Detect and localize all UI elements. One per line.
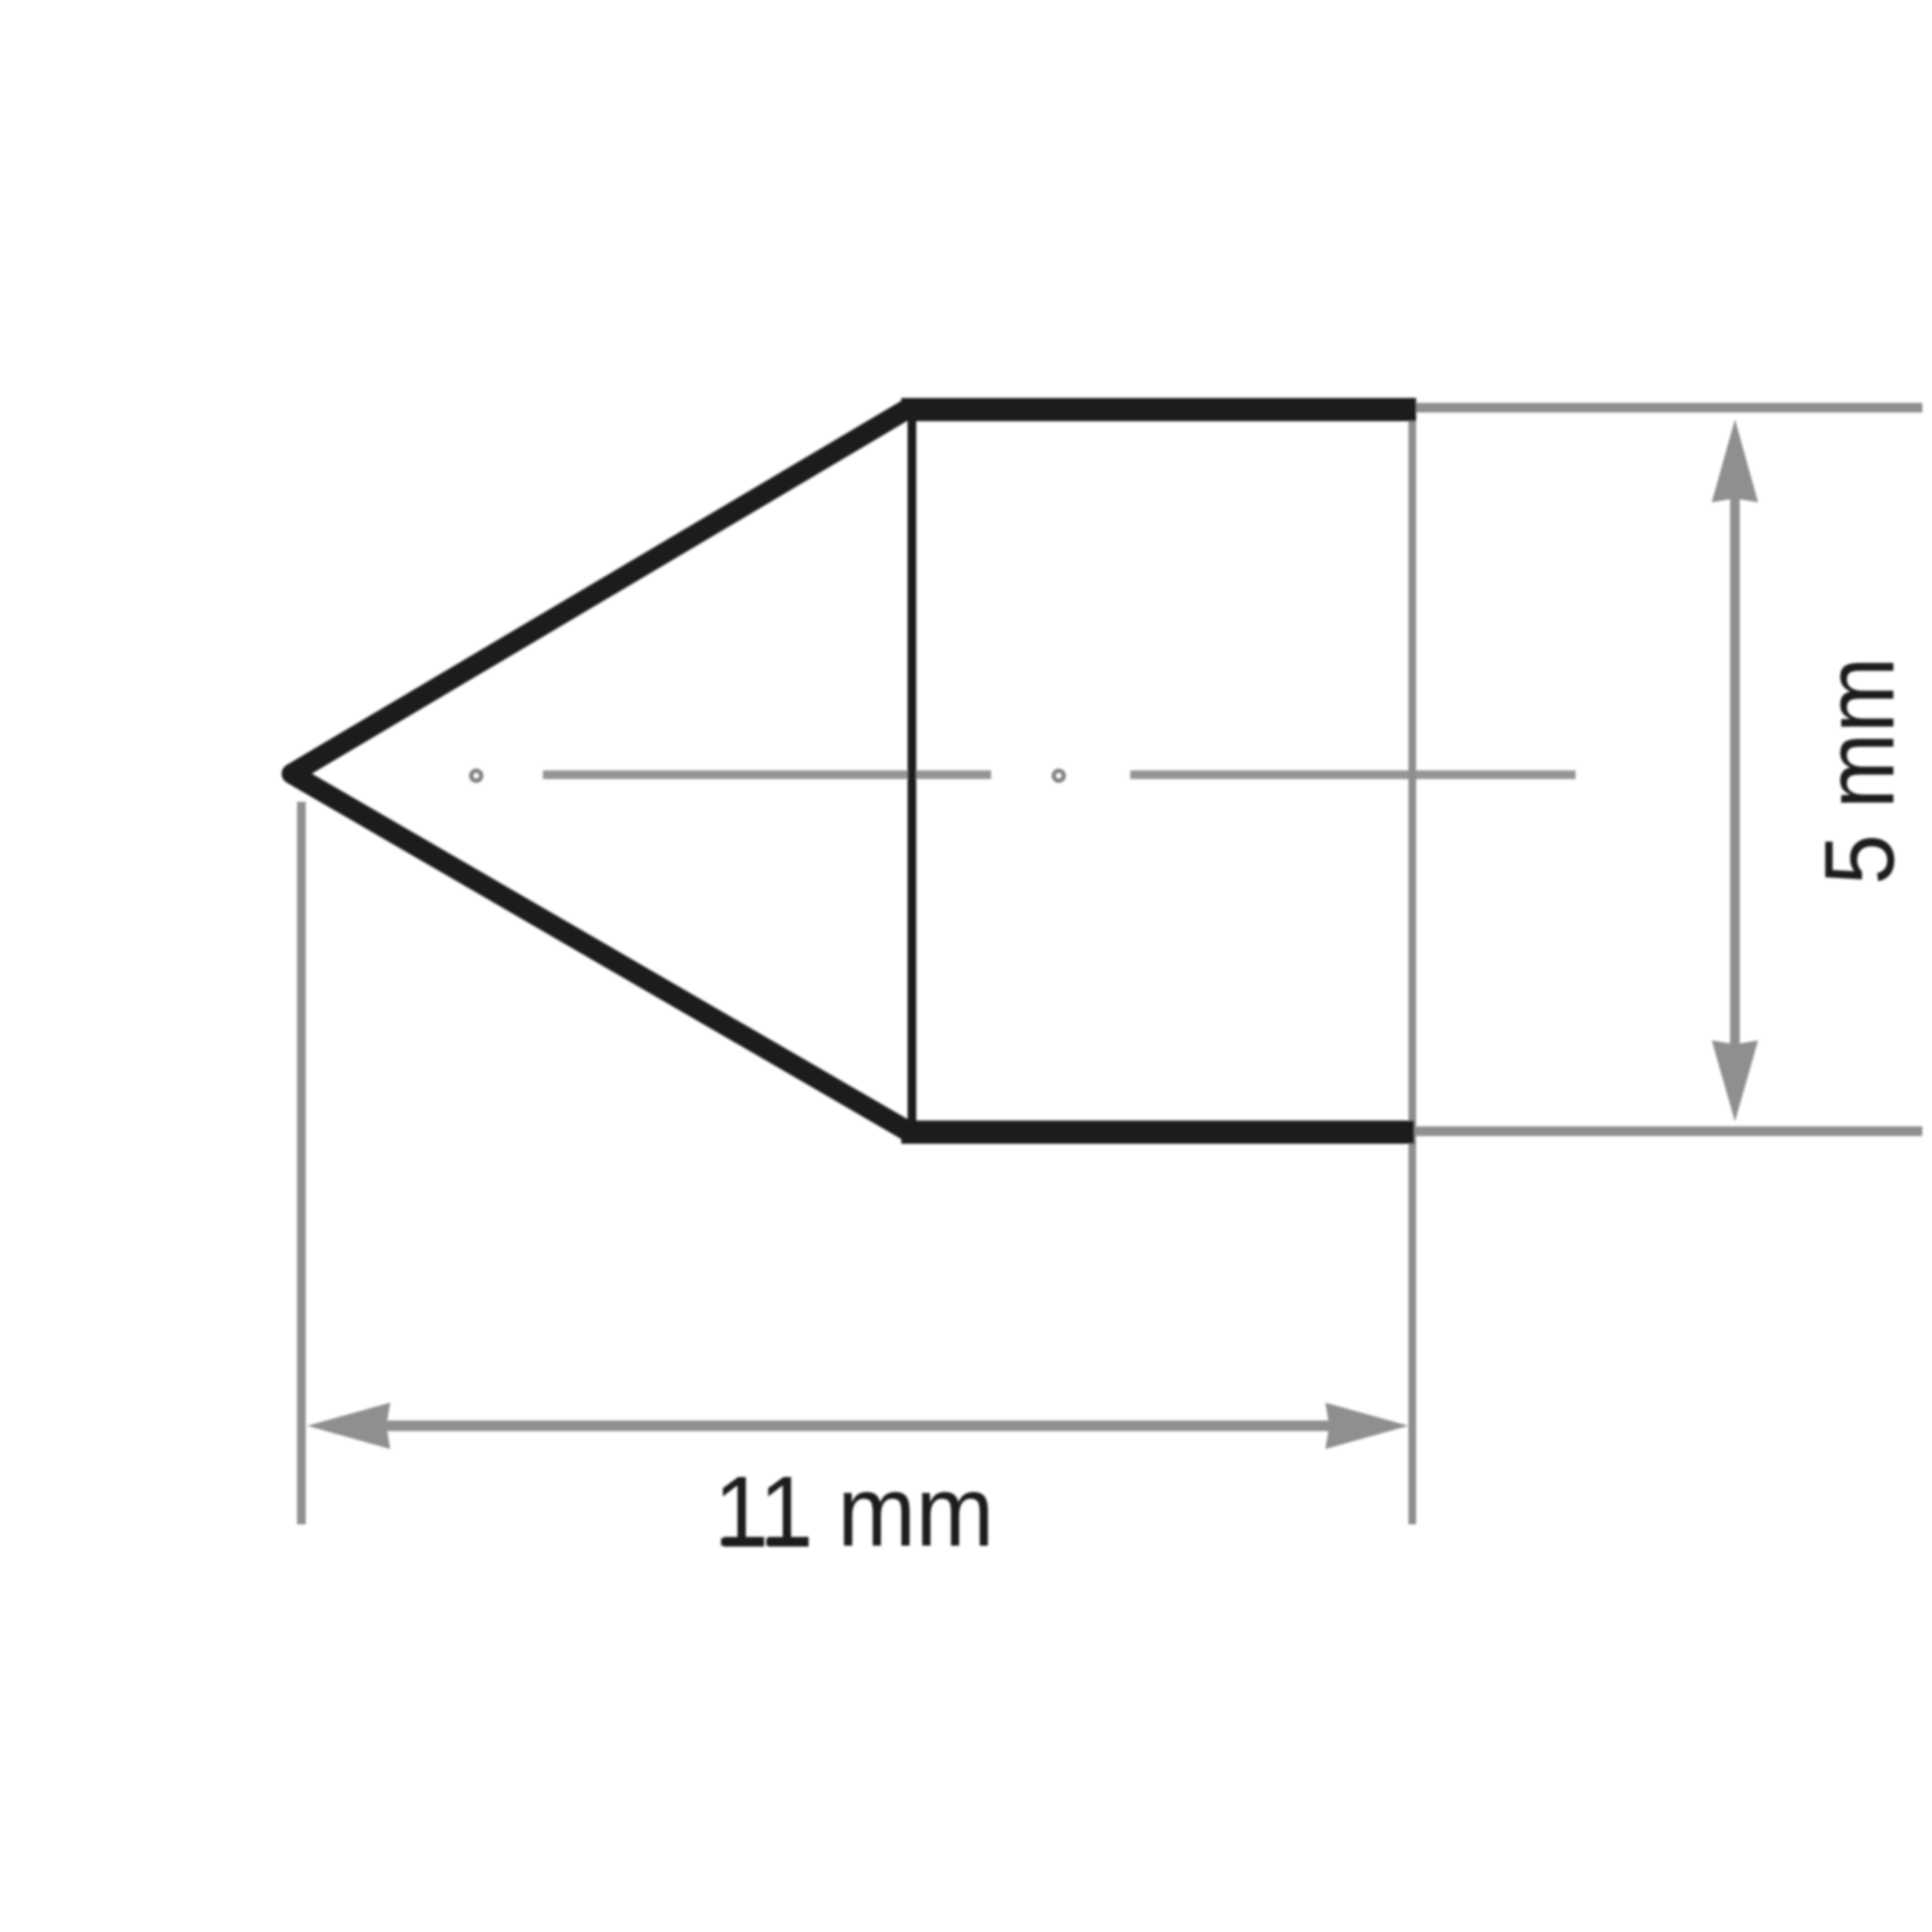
svg-text:11 mm: 11 mm <box>714 1456 994 1567</box>
svg-text:5 mm: 5 mm <box>1804 657 1915 885</box>
